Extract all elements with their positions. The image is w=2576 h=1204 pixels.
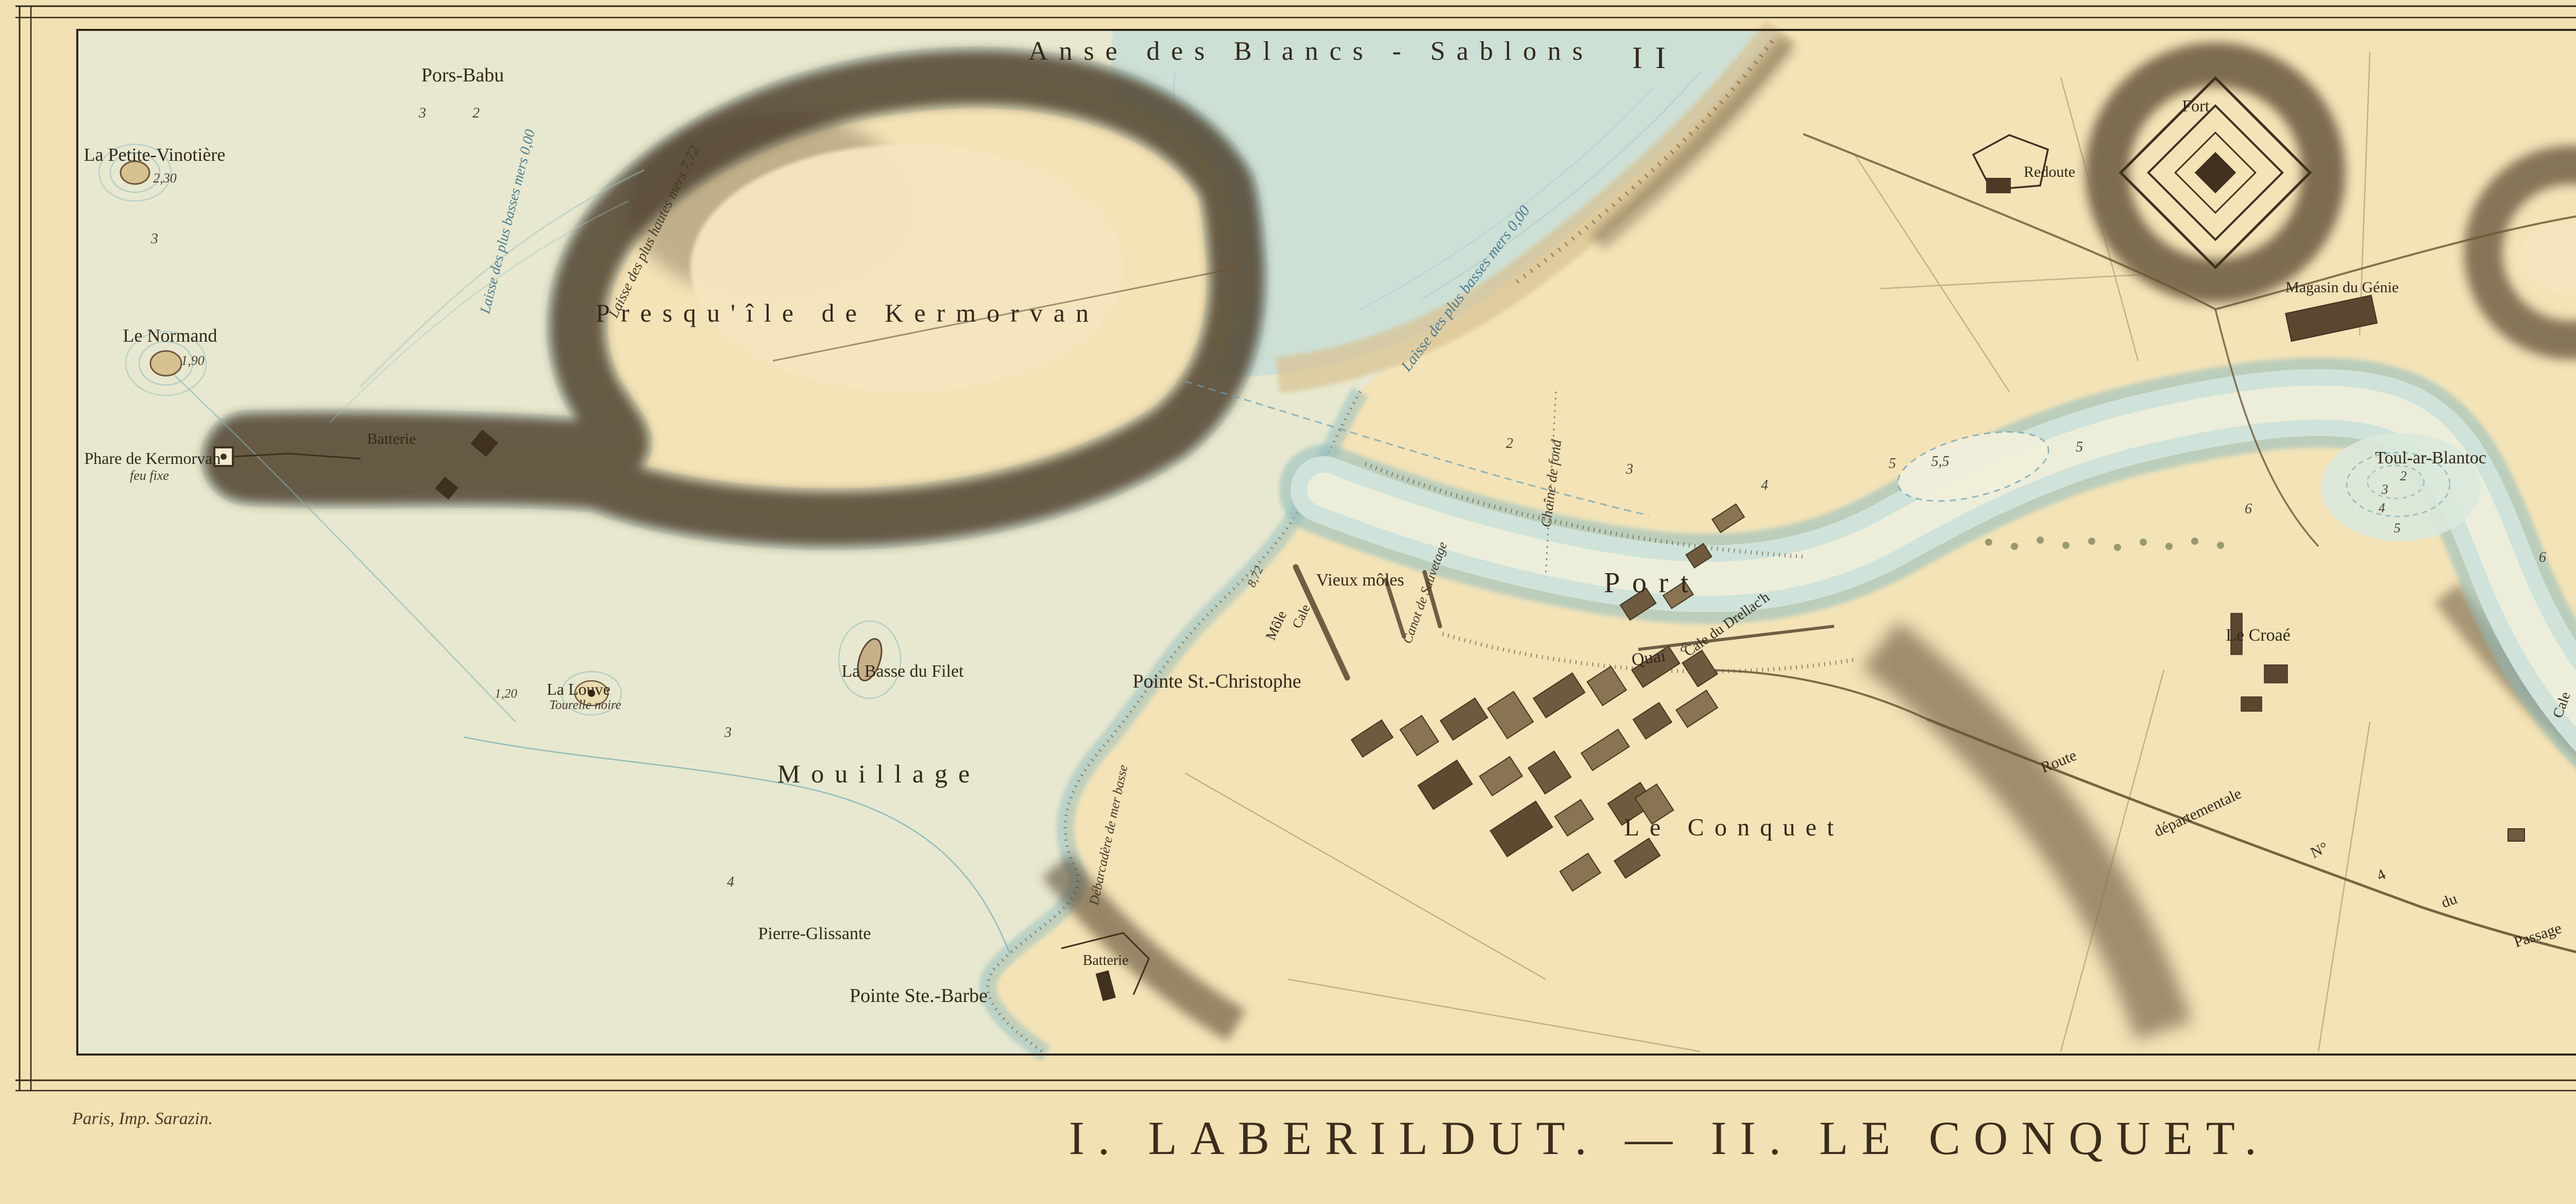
map-artwork: Courbes indicatrices de la fréquence rel… <box>0 0 2576 1204</box>
islet-petite-vinotiere <box>99 144 171 201</box>
kermorvan-plateau <box>690 144 1123 392</box>
printer-imprint: Paris, Imp. Sarazin. <box>72 1109 213 1129</box>
map-canvas: Courbes indicatrices de la fréquence rel… <box>0 0 2576 1204</box>
sheet-title: I. LABERILDUT. — II. LE CONQUET. <box>1069 1111 2270 1165</box>
